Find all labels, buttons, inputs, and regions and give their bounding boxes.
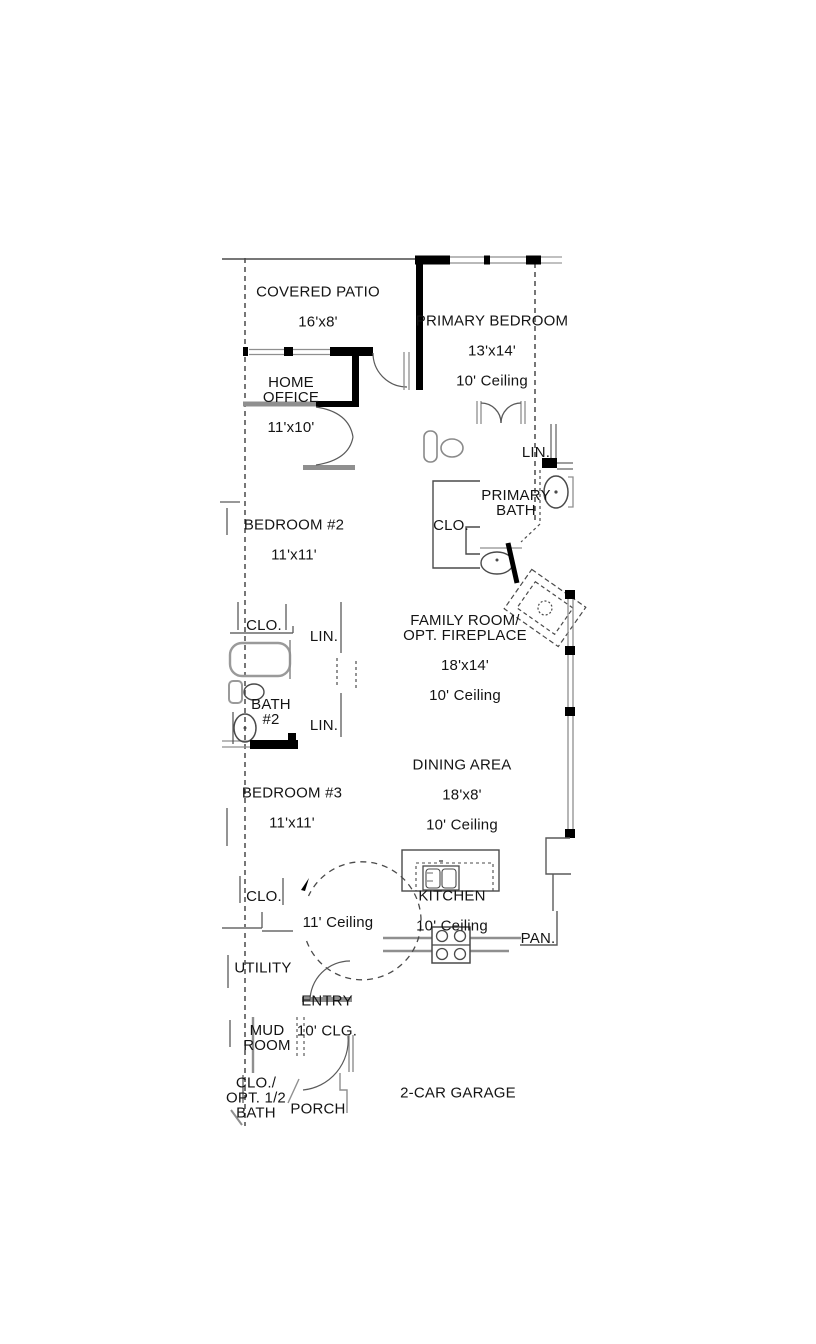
label-rotunda-ceiling: 11' Ceiling [303,900,374,930]
room-dims: 18'x14' [403,658,527,673]
label-hall-linen-lower: LIN. [310,703,338,733]
room-ceiling: 10' Ceiling [413,818,512,833]
closet-label: LIN. [310,628,338,645]
room-ceiling: 10' Ceiling [403,688,527,703]
room-dims: 11'x11' [242,816,342,831]
room-name: PORCH [290,1102,345,1117]
closet-label: LIN. [522,444,550,461]
room-name: CLO./ OPT. 1/2 BATH [226,1076,286,1121]
room-name: DINING AREA [413,758,512,773]
hall-fixtures [424,431,463,462]
room-label-primary-bath: PRIMARY BATH [481,473,550,533]
room-label-primary-bedroom: PRIMARY BEDROOM 13'x14' 10' Ceiling [416,299,568,404]
room-label-bedroom-2: BEDROOM #2 11'x11' [244,503,344,578]
label-hall-linen-upper: LIN. [310,614,338,644]
bathtub-fixture [230,643,290,676]
room-ceiling: 10' CLG. [297,1024,357,1039]
room-name: BEDROOM #2 [244,518,344,533]
home-office-door-arc-upper [316,407,353,437]
double-door-arc-left [481,403,501,423]
room-label-porch: PORCH [290,1087,345,1132]
room-ceiling: 10' Ceiling [416,919,488,934]
room-label-utility: UTILITY [234,946,291,991]
east-window-wall [565,590,575,838]
room-name: ENTRY [297,994,357,1009]
room-name: 2-CAR GARAGE [400,1086,516,1101]
room-label-dining-area: DINING AREA 18'x8' 10' Ceiling [413,743,512,848]
fixture-pill [424,431,437,462]
door-swing-mark [301,878,309,891]
room-ceiling: 10' Ceiling [416,374,568,389]
room-label-mud-room: MUD ROOM [243,1008,290,1068]
room-name: PRIMARY BEDROOM [416,314,568,329]
room-label-opt-half-bath: CLO./ OPT. 1/2 BATH [226,1061,286,1136]
room-label-kitchen: KITCHEN 10' Ceiling [416,874,488,949]
label-pantry: PAN. [521,916,556,946]
closet-label: CLO. [433,517,469,534]
room-dims: 11'x10' [263,420,319,435]
room-label-home-office: HOME OFFICE 11'x10' [263,360,319,450]
primary-double-door [477,401,525,424]
room-name: HOME OFFICE [263,375,319,405]
room-dims: 16'x8' [256,315,380,330]
room-label-bedroom-3: BEDROOM #3 11'x11' [242,771,342,846]
patio-door-arc [373,353,407,387]
label-primary-linen: LIN. [522,430,550,460]
room-name: UTILITY [234,961,291,976]
room-label-garage: 2-CAR GARAGE [400,1071,516,1116]
room-name: PRIMARY BATH [481,488,550,518]
room-label-covered-patio: COVERED PATIO 16'x8' [256,270,380,345]
label-bedroom2-closet: CLO. [246,603,282,633]
double-door-arc-right [501,403,521,423]
top-exterior-wall [222,255,562,266]
room-label-bath-2: BATH #2 [251,682,291,742]
room-name: KITCHEN [416,889,488,904]
room-name: FAMILY ROOM/ OPT. FIREPLACE [403,613,527,643]
room-name: BEDROOM #3 [242,786,342,801]
room-name: BATH #2 [251,697,291,727]
home-office-door-arc-lower [316,437,353,465]
closet-label: CLO. [246,617,282,634]
ceiling-note: 11' Ceiling [303,914,374,931]
room-name: MUD ROOM [243,1023,290,1053]
room-label-family-room: FAMILY ROOM/ OPT. FIREPLACE 18'x14' 10' … [403,598,527,718]
hall-linen-closets [337,602,356,737]
closet-label: LIN. [310,717,338,734]
floor-plan-canvas: COVERED PATIO 16'x8' PRIMARY BEDROOM 13'… [0,0,816,1344]
room-name: COVERED PATIO [256,285,380,300]
room-dims: 13'x14' [416,344,568,359]
shower-wall [508,543,517,583]
label-primary-closet: CLO. [433,503,469,533]
sink-fixture [481,552,513,574]
sink-fixture [441,439,463,457]
room-dims: 18'x8' [413,788,512,803]
closet-label: CLO. [246,888,282,905]
room-name: PAN. [521,930,556,947]
room-label-entry: ENTRY 10' CLG. [297,979,357,1054]
label-bedroom3-closet: CLO. [246,874,282,904]
room-dims: 11'x11' [244,548,344,563]
